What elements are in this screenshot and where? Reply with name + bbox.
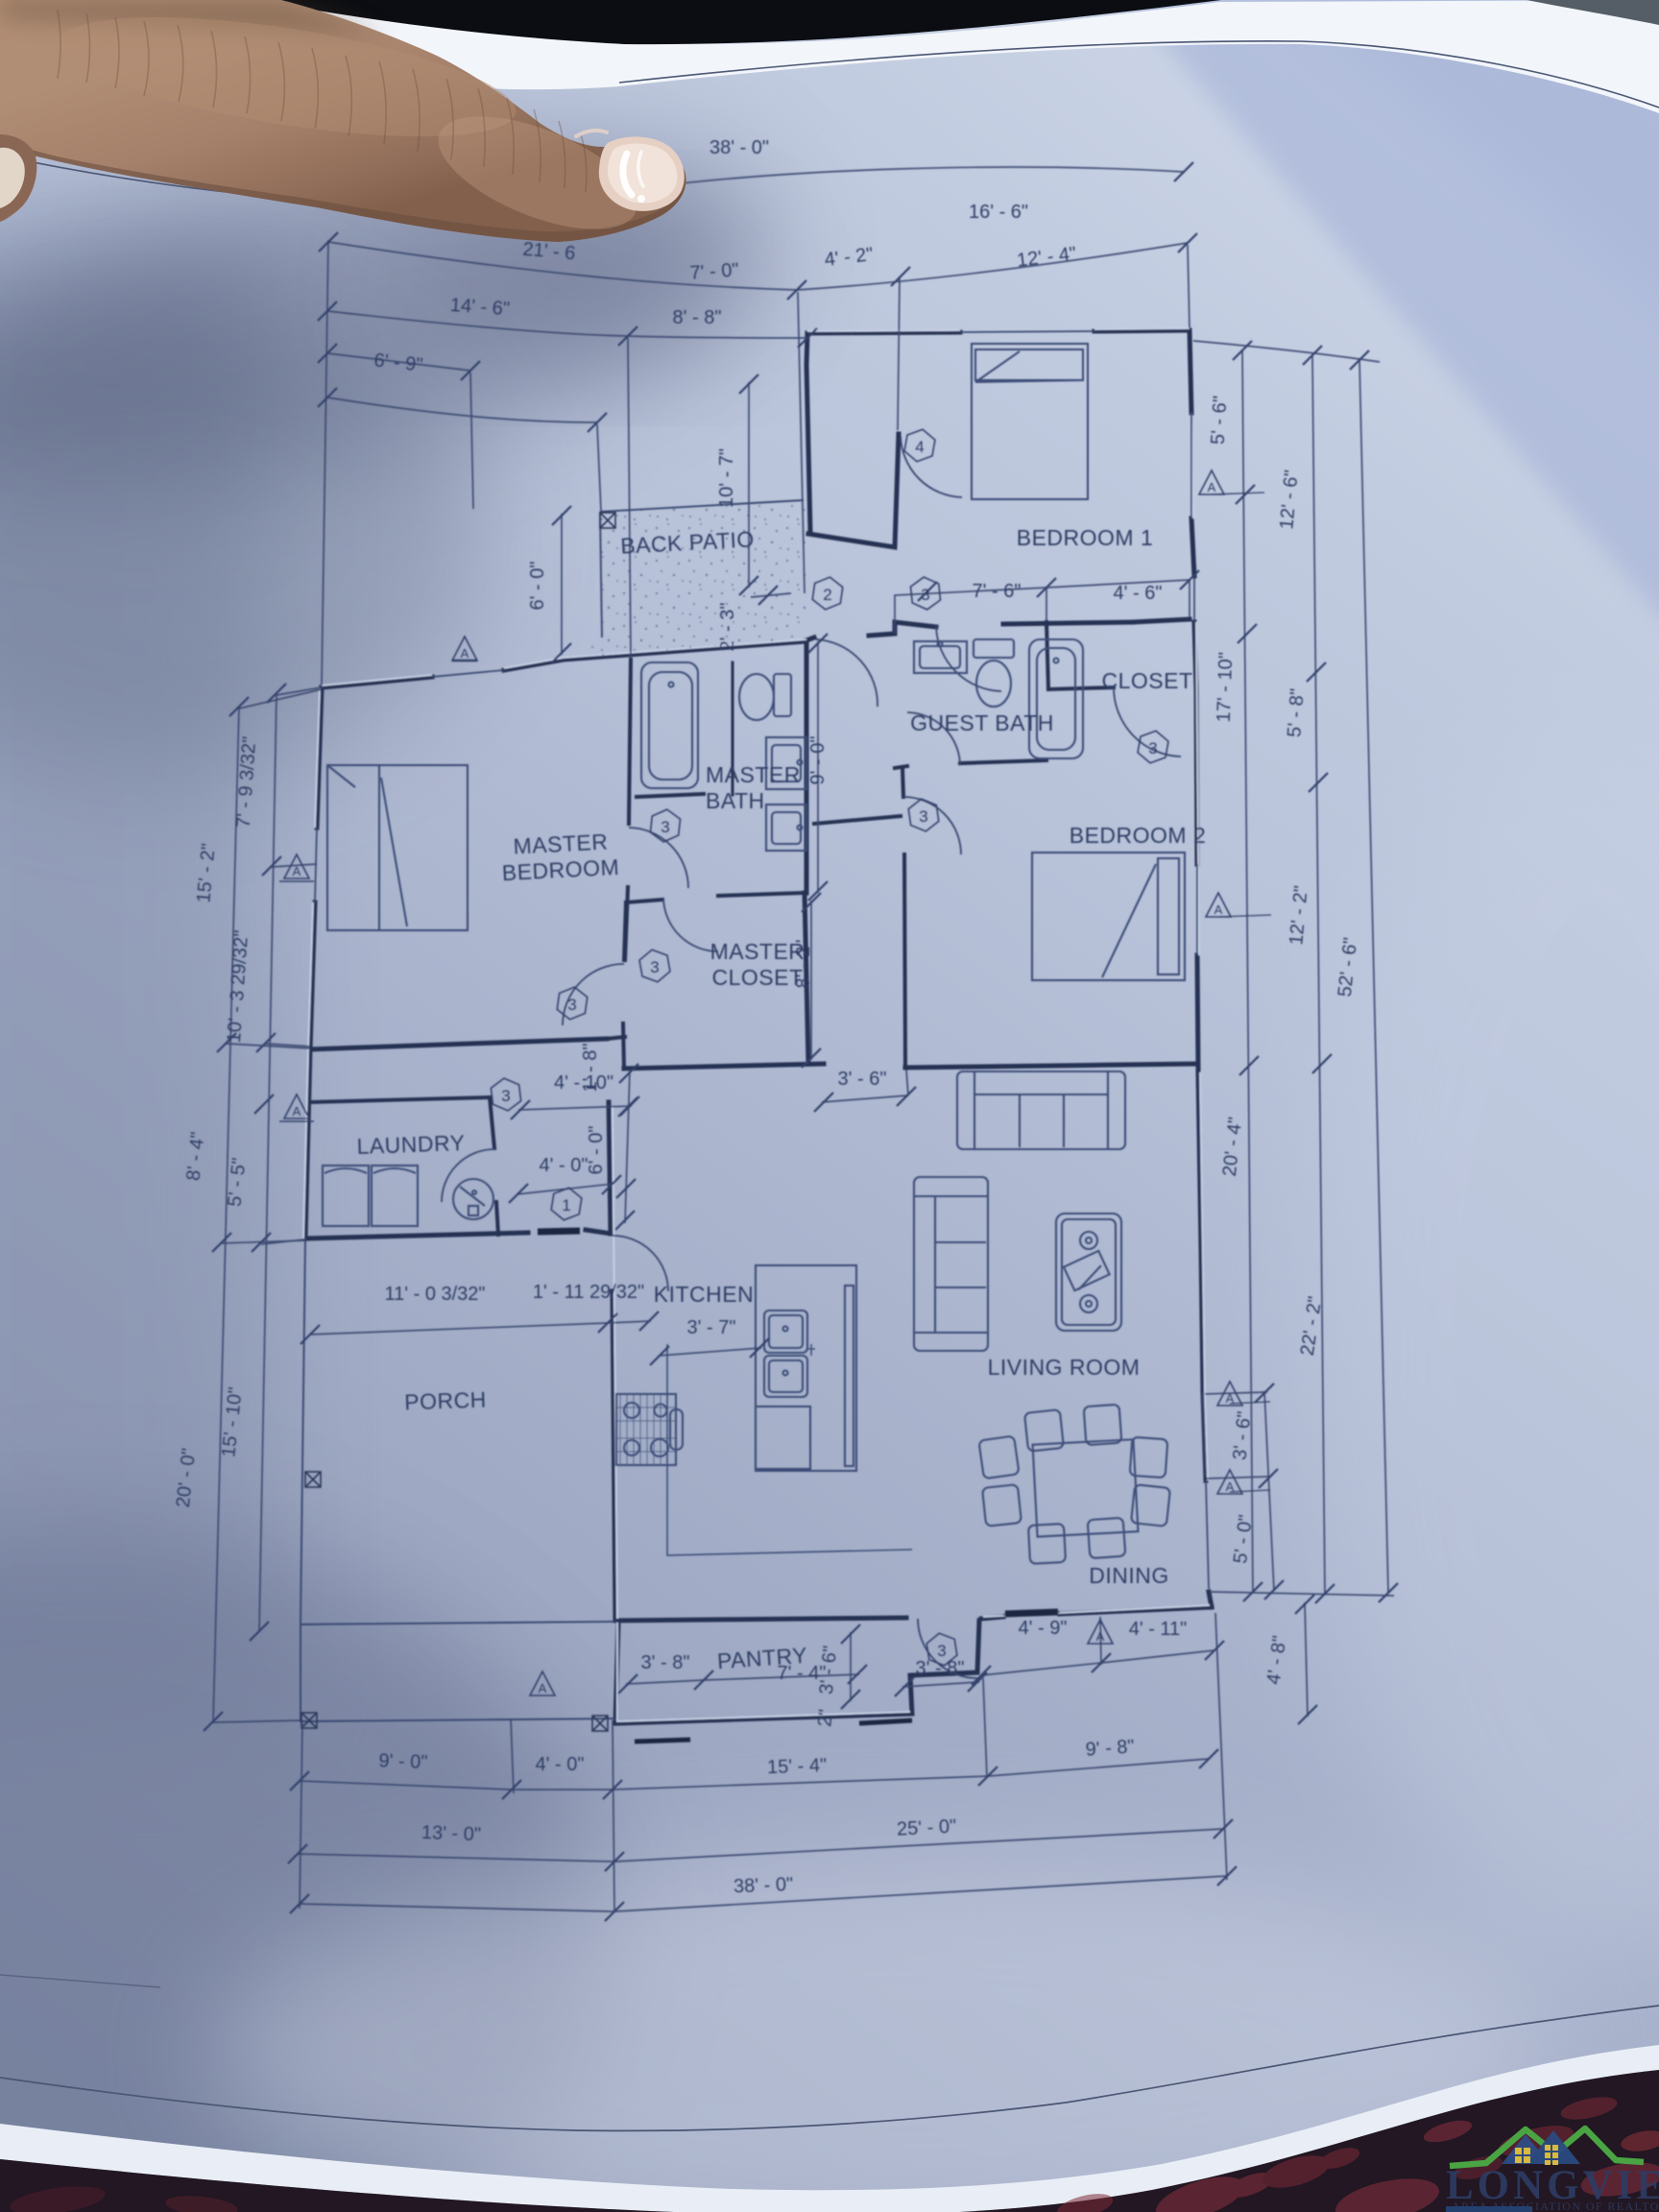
svg-text:GUEST BATH: GUEST BATH (910, 710, 1054, 735)
svg-text:A: A (1214, 902, 1223, 917)
svg-text:3: 3 (567, 996, 576, 1014)
svg-text:5' - 6": 5' - 6" (1208, 396, 1232, 445)
svg-text:9' - 0": 9' - 0" (378, 1750, 428, 1773)
svg-text:2: 2 (823, 586, 831, 604)
svg-text:3: 3 (1148, 739, 1157, 757)
svg-text:7' - 0": 7' - 0" (689, 259, 739, 283)
svg-text:9' - 0": 9' - 0" (807, 736, 829, 785)
svg-text:BATH: BATH (706, 788, 765, 813)
svg-text:3: 3 (650, 958, 659, 976)
svg-text:3: 3 (921, 586, 929, 604)
svg-text:A: A (1096, 1629, 1105, 1644)
svg-text:CLOSET: CLOSET (1101, 668, 1192, 693)
svg-text:3' - 8": 3' - 8" (916, 1658, 965, 1679)
svg-text:16' - 6": 16' - 6" (969, 202, 1028, 223)
svg-text:3: 3 (501, 1087, 510, 1105)
svg-text:LAUNDRY: LAUNDRY (356, 1130, 466, 1159)
svg-text:3: 3 (661, 818, 669, 836)
svg-text:17' - 10": 17' - 10" (1214, 652, 1238, 723)
svg-text:A: A (1208, 480, 1216, 494)
svg-text:BEDROOM 2: BEDROOM 2 (1070, 823, 1207, 848)
svg-text:PORCH: PORCH (404, 1387, 487, 1415)
svg-text:10' - 7": 10' - 7" (716, 448, 737, 508)
svg-text:A: A (539, 1681, 547, 1695)
svg-text:A: A (293, 1104, 301, 1118)
svg-text:14' - 6": 14' - 6" (449, 295, 510, 320)
svg-text:1' - 8": 1' - 8" (580, 1044, 601, 1093)
svg-text:3' - 6": 3' - 6" (838, 1069, 887, 1090)
svg-text:1' - 11 29/32": 1' - 11 29/32" (533, 1282, 644, 1303)
svg-text:DINING: DINING (1089, 1563, 1169, 1588)
svg-text:3: 3 (919, 807, 927, 826)
svg-text:11' - 0 3/32": 11' - 0 3/32" (384, 1284, 485, 1305)
svg-text:6' - 0": 6' - 0" (586, 1126, 607, 1175)
svg-text:3' - 6": 3' - 6" (816, 1645, 841, 1695)
svg-text:A: A (293, 864, 301, 878)
svg-text:LIVING ROOM: LIVING ROOM (988, 1355, 1141, 1380)
svg-text:A: A (461, 646, 469, 661)
svg-text:3' - 7": 3' - 7" (687, 1317, 736, 1338)
svg-text:MASTER: MASTER (710, 939, 805, 964)
svg-text:13' - 0": 13' - 0" (421, 1822, 482, 1845)
svg-text:1: 1 (562, 1196, 570, 1214)
svg-text:3' - 8": 3' - 8" (641, 1652, 690, 1673)
svg-text:4: 4 (915, 438, 924, 456)
svg-text:2": 2" (814, 1708, 837, 1727)
svg-text:7' - 6": 7' - 6" (973, 581, 1022, 602)
svg-text:4' - 9": 4' - 9" (1019, 1618, 1068, 1639)
svg-text:6' - 0": 6' - 0" (527, 562, 548, 611)
svg-text:4' - 6": 4' - 6" (1114, 583, 1163, 604)
svg-text:2' - 3": 2' - 3" (717, 603, 738, 652)
svg-text:MASTER: MASTER (513, 829, 609, 858)
svg-text:BEDROOM 1: BEDROOM 1 (1017, 525, 1154, 550)
svg-text:4' - 0": 4' - 0" (536, 1754, 585, 1775)
svg-text:4' - 0": 4' - 0" (540, 1155, 589, 1176)
svg-text:KITCHEN: KITCHEN (654, 1282, 754, 1307)
svg-text:15' - 4": 15' - 4" (767, 1755, 828, 1778)
svg-text:5' - 8": 5' - 8" (1284, 687, 1308, 737)
svg-text:9' - 8": 9' - 8" (1085, 1736, 1135, 1760)
svg-text:MASTER: MASTER (706, 762, 801, 787)
svg-text:38' - 0": 38' - 0" (733, 1874, 794, 1897)
svg-text:4' - 11": 4' - 11" (1129, 1619, 1188, 1640)
svg-text:25' - 0": 25' - 0" (897, 1815, 957, 1839)
svg-text:8' - 8": 8' - 8" (673, 307, 722, 328)
svg-text:CLOSET: CLOSET (711, 965, 803, 990)
svg-text:38' - 0": 38' - 0" (709, 137, 769, 158)
svg-text:8' - 2": 8' - 2" (793, 940, 814, 989)
